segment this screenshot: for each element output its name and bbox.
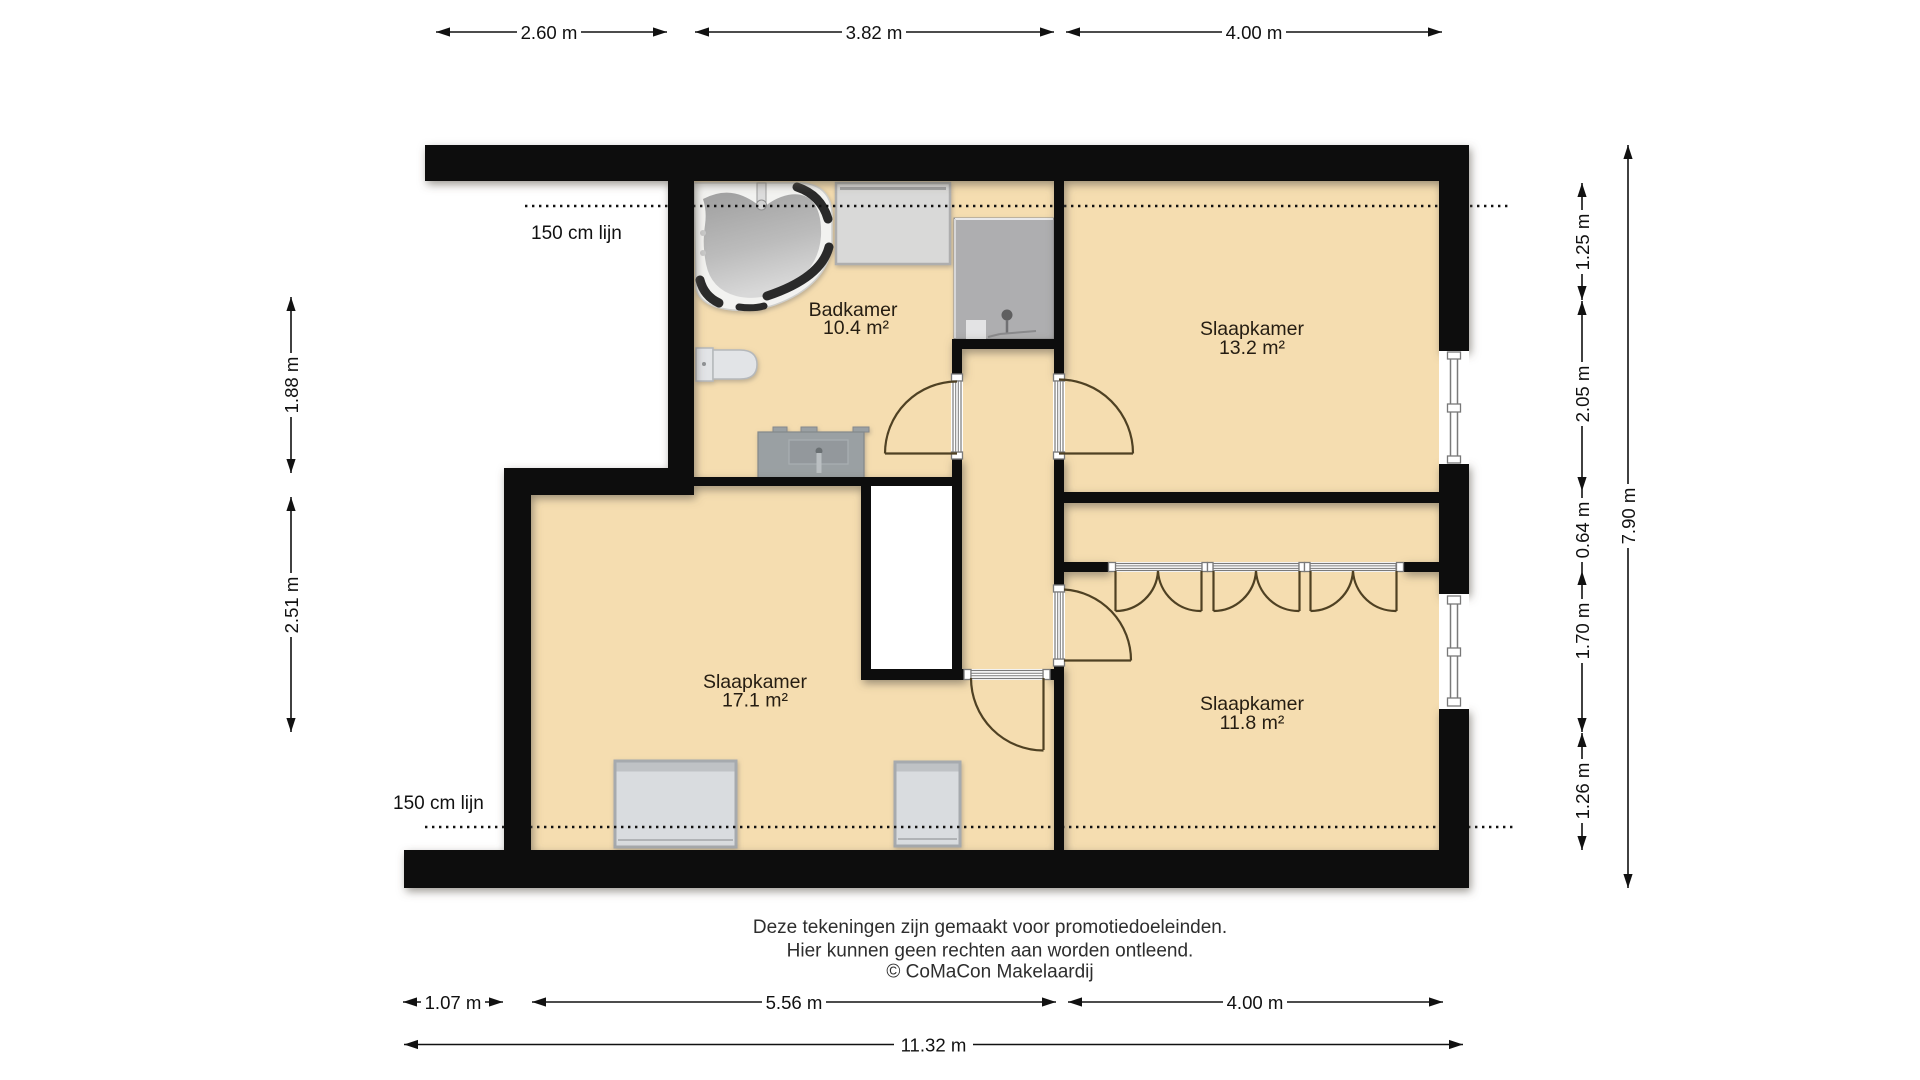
svg-text:13.2 m²: 13.2 m² (1219, 337, 1286, 359)
svg-text:150 cm lijn: 150 cm lijn (531, 223, 622, 244)
svg-text:5.56 m: 5.56 m (766, 992, 823, 1013)
svg-text:10.4 m²: 10.4 m² (823, 317, 890, 339)
svg-text:0.64 m: 0.64 m (1572, 502, 1593, 559)
svg-text:1.26 m: 1.26 m (1572, 763, 1593, 820)
svg-text:2.60 m: 2.60 m (521, 22, 578, 43)
svg-text:4.00 m: 4.00 m (1226, 22, 1283, 43)
svg-text:2.05 m: 2.05 m (1572, 366, 1593, 423)
svg-text:4.00 m: 4.00 m (1227, 992, 1284, 1013)
svg-text:150 cm lijn: 150 cm lijn (393, 793, 484, 814)
svg-text:7.90 m: 7.90 m (1618, 488, 1639, 545)
svg-text:17.1 m²: 17.1 m² (722, 690, 789, 712)
svg-text:1.88 m: 1.88 m (281, 357, 302, 414)
svg-text:11.32 m: 11.32 m (901, 1035, 967, 1056)
svg-text:11.8 m²: 11.8 m² (1220, 712, 1285, 734)
svg-text:3.82 m: 3.82 m (846, 22, 903, 43)
svg-text:Hier kunnen geen rechten aan w: Hier kunnen geen rechten aan worden ontl… (787, 941, 1194, 962)
svg-text:2.51 m: 2.51 m (281, 577, 302, 634)
svg-text:© CoMaCon Makelaardij: © CoMaCon Makelaardij (886, 962, 1093, 983)
svg-text:1.07 m: 1.07 m (425, 992, 482, 1013)
svg-text:1.70 m: 1.70 m (1572, 603, 1593, 660)
svg-text:1.25 m: 1.25 m (1572, 214, 1593, 271)
svg-text:Deze tekeningen zijn gemaakt v: Deze tekeningen zijn gemaakt voor promot… (753, 917, 1227, 938)
